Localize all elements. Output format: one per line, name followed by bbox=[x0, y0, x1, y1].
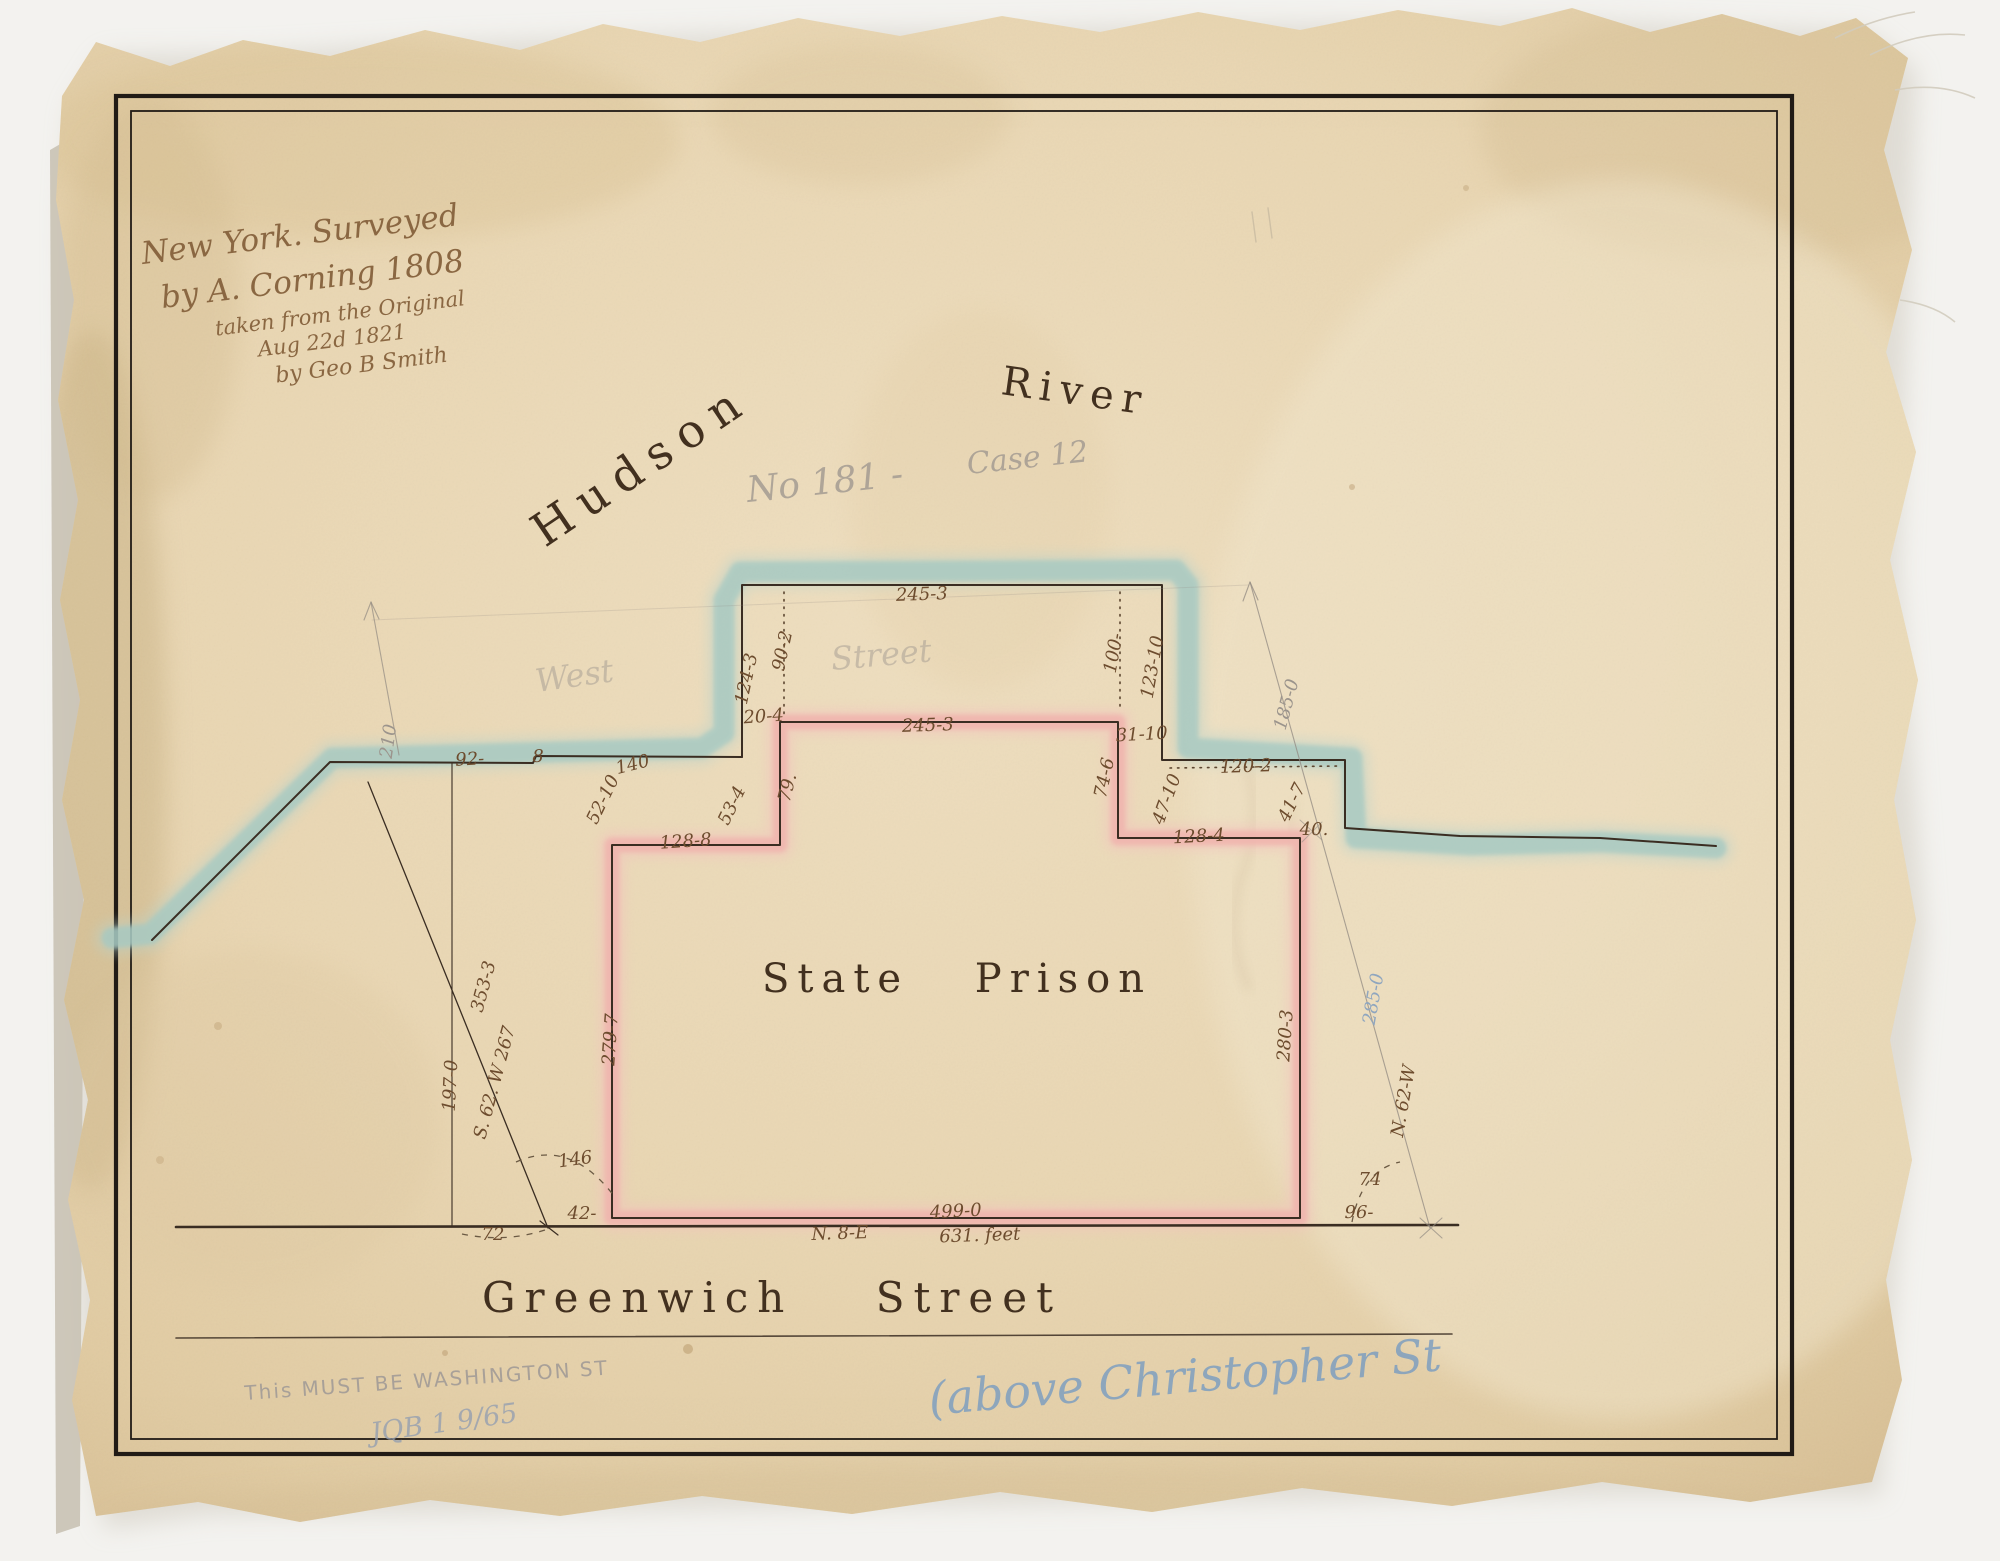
dim-bearing-bottom: N. 8-E bbox=[810, 1222, 868, 1245]
dim-east-side: 280-3 bbox=[1273, 1009, 1298, 1063]
dim-31-10: 31-10 bbox=[1115, 723, 1168, 747]
state-prison-label: State Prison bbox=[762, 956, 1152, 1002]
dim-120-2: 120-2 bbox=[1220, 755, 1273, 778]
dim-20-4: 20-4 bbox=[742, 705, 785, 729]
dim-92: 92- bbox=[455, 748, 485, 770]
greenwich-street-label: Greenwich Street bbox=[482, 1273, 1062, 1322]
dim-top-width: 245-3 bbox=[895, 583, 949, 606]
dim-west-side: 279-7 bbox=[598, 1012, 623, 1067]
dim-pink-top: 245-3 bbox=[901, 714, 955, 737]
dim-total-feet: 631. feet bbox=[939, 1224, 1021, 1248]
dim-128-8: 128-8 bbox=[659, 829, 712, 854]
dim-128-4: 128-4 bbox=[1172, 825, 1225, 849]
dim-197-0: 197-0 bbox=[439, 1059, 463, 1112]
dim-8: 8 bbox=[532, 746, 543, 767]
dim-72: 72 bbox=[482, 1224, 505, 1245]
survey-map-svg: New York. Surveyed by A. Corning 1808 ta… bbox=[0, 0, 2000, 1561]
dim-bottom-width: 499-0 bbox=[928, 1200, 982, 1224]
scanned-map-photo: New York. Surveyed by A. Corning 1808 ta… bbox=[0, 0, 2000, 1561]
dim-42: 42- bbox=[567, 1203, 597, 1224]
dim-angle-74: 74 bbox=[1359, 1169, 1382, 1190]
dim-40: 40. bbox=[1299, 819, 1329, 840]
dim-96: 96- bbox=[1345, 1202, 1374, 1223]
